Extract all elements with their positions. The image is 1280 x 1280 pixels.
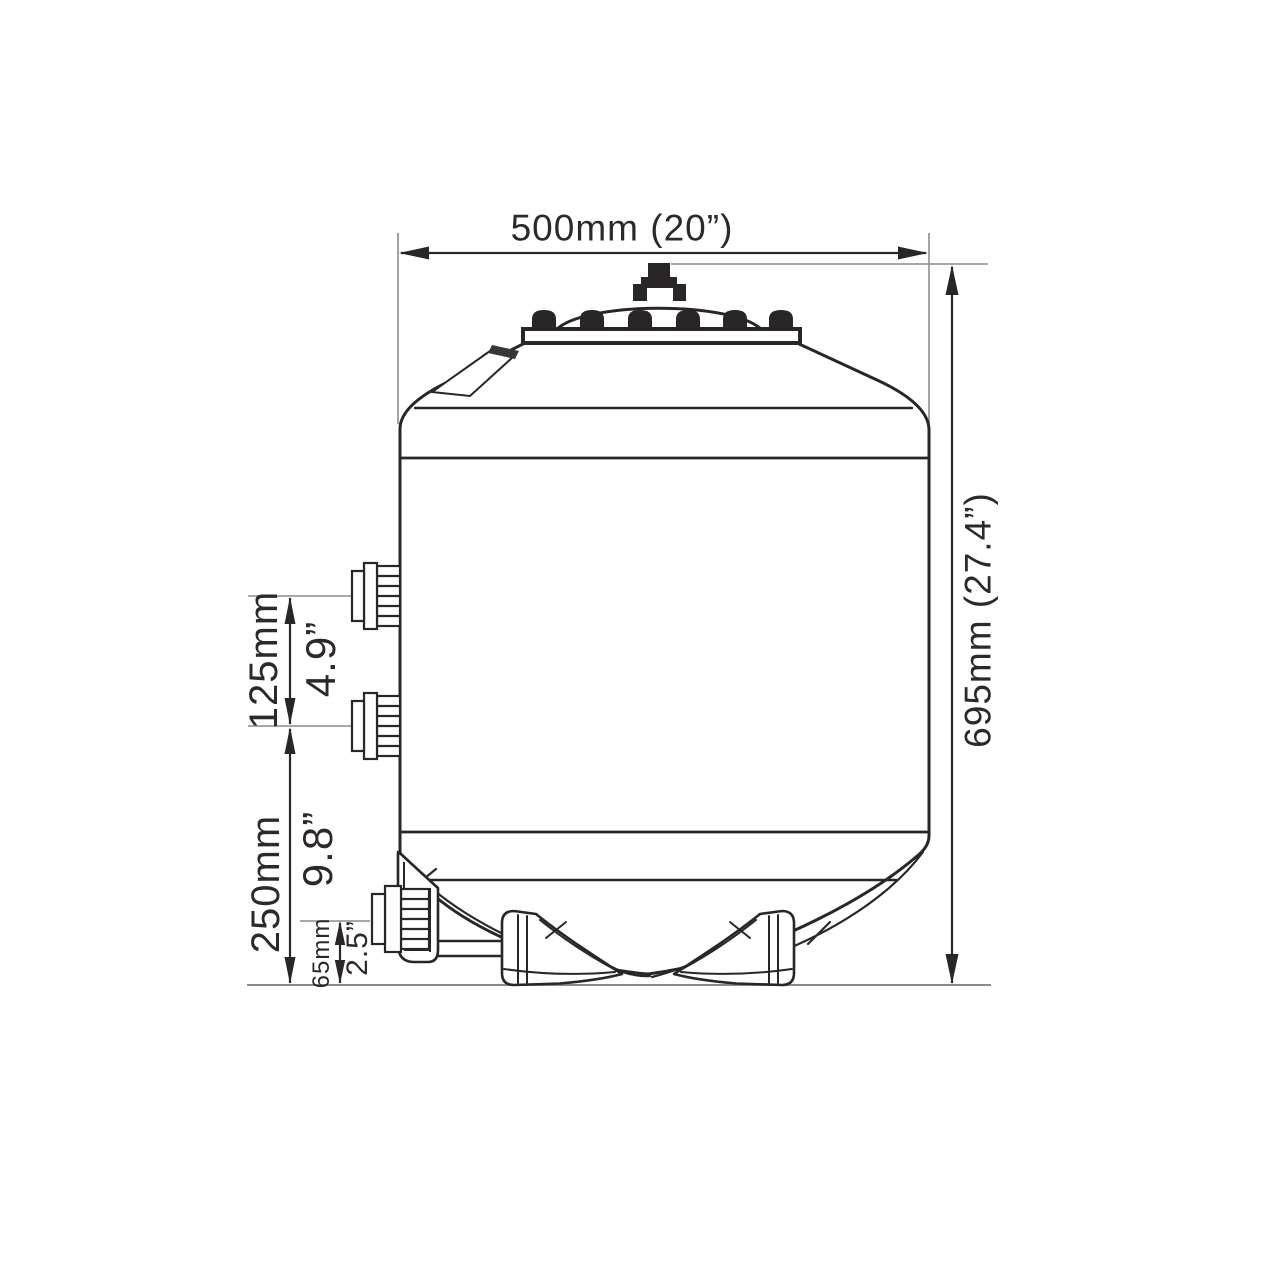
fitting-cap bbox=[648, 263, 670, 279]
side-port-upper bbox=[352, 563, 400, 629]
drain-port-flange bbox=[385, 886, 401, 952]
lid-assembly bbox=[523, 263, 800, 343]
port-spacing-mm-label: 125mm bbox=[244, 591, 284, 729]
lid-flange-plate bbox=[523, 329, 800, 343]
lower-section-mm-label: 250mm bbox=[246, 815, 286, 953]
lower-arrow-bottom bbox=[285, 957, 296, 984]
width-arrow-right bbox=[898, 247, 928, 260]
port-spacing-arrow-top bbox=[285, 597, 296, 624]
fitting-base-nut-center bbox=[647, 288, 673, 301]
lid-bolt-5 bbox=[723, 310, 747, 330]
height-dimension-label: 695mm (27.4”) bbox=[960, 492, 997, 748]
drain-port bbox=[372, 886, 429, 952]
upper-port-flange bbox=[364, 563, 377, 629]
top-fitting bbox=[633, 263, 686, 301]
lower-port-cap bbox=[352, 701, 364, 751]
drain-height-mm-label: 65mm bbox=[310, 918, 334, 989]
height-arrow-top bbox=[946, 265, 959, 295]
tank-body bbox=[400, 343, 929, 974]
lid-bolt-2 bbox=[580, 310, 604, 330]
lid-bolt-6 bbox=[769, 310, 793, 330]
tank-technical-drawing bbox=[0, 0, 1280, 1280]
lid-bolt-1 bbox=[532, 310, 556, 330]
port-spacing-in-label: 4.9” bbox=[300, 621, 342, 697]
width-dimension-label: 500mm (20”) bbox=[511, 210, 734, 247]
lid-bolt-3 bbox=[628, 310, 652, 330]
dish-tick-right bbox=[808, 922, 830, 944]
lower-arrow-top bbox=[285, 727, 296, 754]
lid-bolt-4 bbox=[676, 310, 700, 330]
lower-port-flange bbox=[364, 693, 377, 759]
lower-section-in-label: 9.8” bbox=[297, 811, 339, 887]
drain-height-in-label: 2.5” bbox=[343, 920, 373, 976]
upper-port-cap bbox=[352, 571, 364, 621]
side-port-lower bbox=[352, 693, 400, 759]
width-arrow-left bbox=[399, 247, 429, 260]
diagram-page: 500mm (20”) 695mm (27.4”) 125mm 4.9” 250… bbox=[0, 0, 1280, 1280]
port-spacing-arrow-bottom bbox=[285, 698, 296, 725]
height-arrow-bottom bbox=[946, 954, 959, 984]
